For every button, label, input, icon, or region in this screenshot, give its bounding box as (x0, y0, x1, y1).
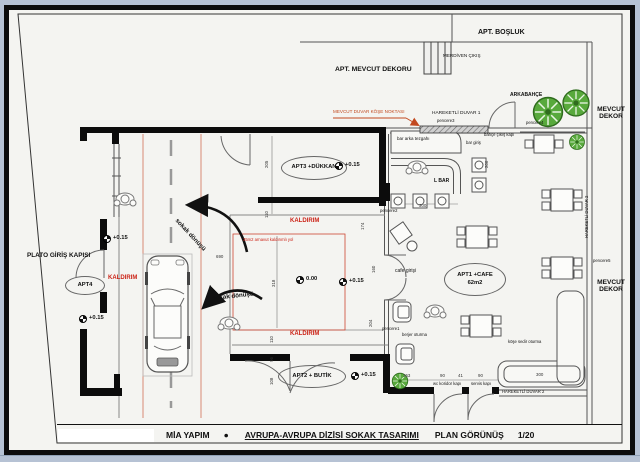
window-edge-top (0, 0, 640, 5)
level-value: 0.00 (306, 277, 317, 283)
movable-wall-1 (420, 126, 488, 133)
level-icon (351, 372, 359, 380)
label-l-bar: L BAR (434, 179, 449, 184)
label-mevcut-dekor-top: MEVCUT DEKOR (595, 107, 627, 120)
armchair (396, 344, 414, 364)
label-hareketli-duvar-2-right: HAREKETLİ DUVAR 2 (585, 196, 589, 238)
title-block-divider (57, 424, 622, 425)
label-pencere5: pencere5 (593, 259, 610, 263)
person-figure (114, 193, 136, 206)
bar-back-counter (391, 131, 461, 153)
plan-drawing-sheet: APT. BOŞLUK MERDİVEN ÇIKIŞ APT. MEVCUT D… (0, 0, 640, 462)
level-icon (339, 278, 347, 286)
dim-153: 153 (403, 374, 410, 378)
cafe-table (542, 189, 582, 211)
level-marker-apt3: +0.15 (335, 162, 360, 170)
dim-110-top: 110 (265, 211, 269, 218)
level-marker-apt4: +0.15 (79, 315, 104, 323)
level-icon (79, 315, 87, 323)
dim-318: 318 (272, 280, 276, 287)
label-kaldirim-3: KALDIRIM (108, 275, 137, 281)
dim-160: 160 (372, 266, 376, 273)
apt1-text: APT1 +CAFE (457, 272, 493, 279)
armchair (393, 302, 411, 322)
level-value: +0.15 (113, 236, 128, 242)
room-label-apt4: APT4 (65, 276, 105, 295)
dim-174: 174 (361, 223, 365, 230)
window-edge-bottom (0, 455, 640, 462)
apt2-text: APT2 + BUTİK (292, 373, 331, 380)
level-value: +0.15 (345, 163, 360, 169)
label-mevcut-duvar-kose: MEVCUT DUVAR KÖŞE NOKTASI (333, 110, 404, 115)
room-label-apt2: APT2 + BUTİK (278, 365, 346, 388)
tree-icon (563, 90, 589, 116)
label-pencere3: pencere3 (437, 119, 454, 123)
label-berjer-oturma: berjer oturma (402, 333, 427, 337)
tilted-chair (390, 222, 412, 244)
level-icon (296, 276, 304, 284)
tree-icon (570, 135, 585, 150)
dim-41: 41 (458, 374, 463, 378)
dim-300-sofa: 300 (536, 373, 543, 377)
label-bar-arka-tezgahi: bar arka tezgahı (397, 137, 430, 142)
dim-96: 96 (270, 357, 274, 362)
label-apt-mevcut-dekoru: APT. MEVCUT DEKORU (335, 67, 412, 74)
view-name: PLAN GÖRÜNÜŞ (435, 431, 504, 440)
label-merdiven-cikis: MERDİVEN ÇIKIŞ (443, 54, 481, 59)
title-block: MİA YAPIM ● AVRUPA-AVRUPA DİZİSİ SOKAK T… (58, 426, 622, 444)
level-value: +0.15 (89, 316, 104, 322)
label-cafe-girisi: cafe girişi (395, 269, 416, 274)
dim-205: 205 (265, 161, 269, 168)
dim-110-bottom: 110 (270, 336, 274, 343)
garden-table (525, 135, 563, 153)
dim-204: 204 (369, 320, 373, 327)
dim-300-bar: 300 (419, 204, 426, 208)
scale-value: 1/20 (518, 431, 535, 440)
label-mevcut-dekor-mid: MEVCUT DEKOR (595, 280, 627, 293)
dim-206: 206 (485, 161, 489, 168)
label-hareketli-duvar-1: HAREKETLİ DUVAR 1 (432, 112, 480, 117)
project-title: AVRUPA-AVRUPA DİZİSİ SOKAK TASARIMI (245, 431, 419, 440)
dim-690: 690 (216, 255, 223, 259)
label-pencere4: pencere4 (526, 121, 543, 125)
apt1-area-text: 62m2 (468, 280, 483, 287)
person-figure (424, 305, 446, 318)
logo-box (58, 429, 154, 442)
label-kaldirim-2: KALDIRIM (290, 331, 319, 337)
label-servis-kapi: servis kapı (471, 382, 491, 386)
apt3-text: APT3 +DÜKKAN (292, 164, 337, 171)
company-name: MİA YAPIM (166, 431, 210, 440)
label-hareketli-duvar-2-bottom: HAREKETLİ DUVAR 2 (502, 390, 544, 394)
car-symbol (143, 254, 192, 376)
cafe-table (461, 315, 501, 337)
label-arkabahce: ARKABAHÇE (510, 93, 542, 98)
level-marker-entry-top: +0.15 (103, 235, 128, 243)
level-marker-sidewalk: +0.15 (339, 278, 364, 286)
level-icon (103, 235, 111, 243)
label-bar-giris: bar giriş (466, 141, 481, 145)
label-wc-koridor-kapi: wc koridor kapı (433, 382, 461, 386)
cafe-table (542, 257, 582, 279)
label-kose-sedir-oturma: köşe sedir oturma (508, 340, 541, 344)
person-figure (218, 317, 240, 330)
level-icon (335, 162, 343, 170)
cobblestone-zone (233, 234, 345, 330)
wall-corner-annotation-arrow (333, 118, 418, 125)
label-pencere1: pencere1 (382, 327, 399, 331)
separator-bullet: ● (224, 431, 229, 440)
cafe-table (457, 226, 497, 248)
label-bahce-cikis-kapi: bahçe çıkış kapı (484, 133, 514, 137)
label-kaldirim-1: KALDIRIM (290, 218, 319, 224)
room-label-apt1-cafe: APT1 +CAFE 62m2 (444, 263, 506, 296)
label-apt-bosluk: APT. BOŞLUK (478, 29, 525, 36)
label-pencere2: pencere2 (380, 209, 397, 213)
level-marker-apt2: +0.15 (351, 372, 376, 380)
apt4-text: APT4 (78, 282, 93, 289)
bar-stool (435, 194, 449, 208)
level-marker-road: 0.00 (296, 276, 317, 284)
label-yol-notu: 35m2 arnavut kaldırımlı yol (243, 238, 293, 242)
dim-90-right: 90 (478, 374, 483, 378)
dim-90-left: 90 (440, 374, 445, 378)
level-value: +0.15 (361, 373, 376, 379)
level-value: +0.15 (349, 279, 364, 285)
bar-stool (472, 178, 486, 192)
side-table (407, 241, 417, 251)
dim-108: 108 (270, 378, 274, 385)
label-plato-giris-kapisi: PLATO GİRİŞ KAPISI (27, 253, 90, 259)
bar-stool (391, 194, 405, 208)
